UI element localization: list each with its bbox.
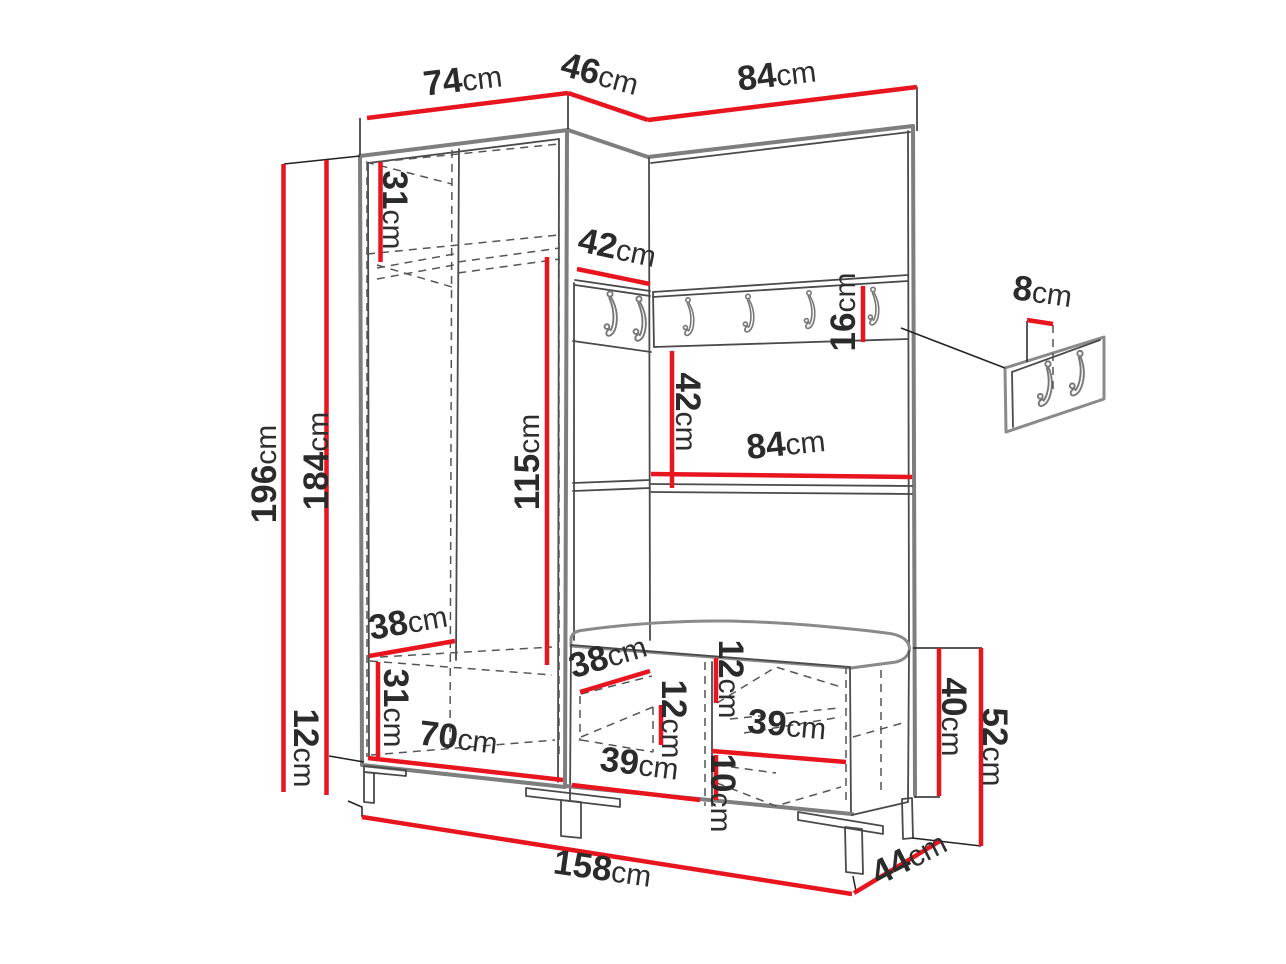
svg-text:8cm: 8cm — [1010, 268, 1074, 315]
svg-text:158cm: 158cm — [551, 842, 654, 894]
svg-text:38cm: 38cm — [564, 626, 651, 686]
svg-text:84cm: 84cm — [735, 50, 818, 98]
svg-text:10cm: 10cm — [703, 754, 742, 833]
svg-text:115cm: 115cm — [508, 414, 547, 510]
svg-text:38cm: 38cm — [366, 596, 451, 648]
svg-text:42cm: 42cm — [575, 220, 660, 275]
svg-text:184cm: 184cm — [297, 412, 336, 510]
svg-text:70cm: 70cm — [417, 713, 500, 761]
svg-text:42cm: 42cm — [668, 373, 707, 452]
svg-text:196cm: 196cm — [245, 425, 284, 523]
svg-text:31cm: 31cm — [376, 669, 415, 748]
svg-text:74cm: 74cm — [421, 55, 504, 103]
svg-text:40cm: 40cm — [934, 678, 973, 757]
svg-text:12cm: 12cm — [654, 680, 693, 759]
svg-text:52cm: 52cm — [975, 708, 1014, 787]
svg-text:16cm: 16cm — [824, 273, 863, 352]
svg-text:31cm: 31cm — [375, 171, 414, 250]
svg-text:12cm: 12cm — [286, 709, 325, 788]
svg-text:39cm: 39cm — [746, 702, 828, 748]
svg-text:84cm: 84cm — [745, 420, 828, 467]
svg-text:12cm: 12cm — [711, 640, 750, 719]
